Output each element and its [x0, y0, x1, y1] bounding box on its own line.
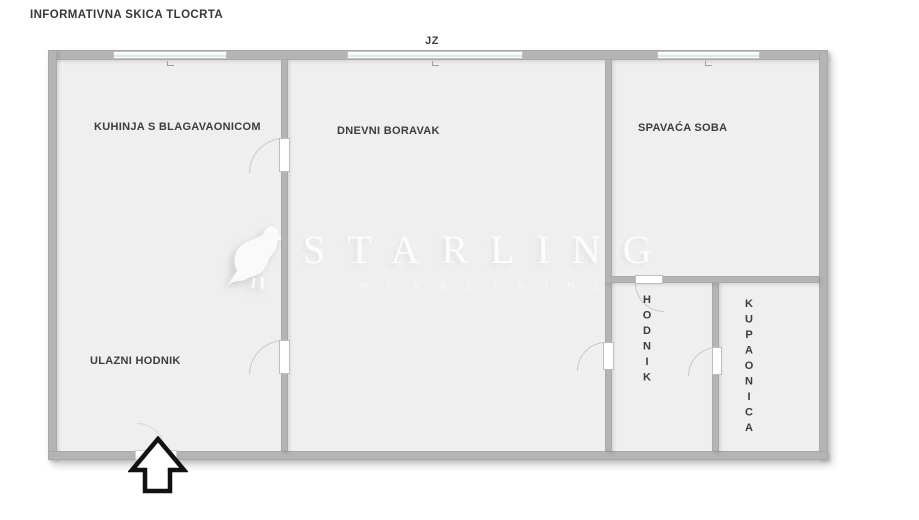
starling-bird-icon — [226, 225, 286, 289]
watermark-subtitle: NEKRETNINE — [360, 280, 620, 292]
page-title: INFORMATIVNA SKICA TLOCRTA — [30, 9, 223, 21]
room-label-entry-hall: ULAZNI HODNIK — [90, 355, 181, 367]
hallway-door-leaf — [635, 275, 663, 284]
kitchen-window-center-tick — [167, 61, 174, 66]
living-room-window — [347, 51, 523, 59]
living-room-door-arc — [577, 342, 606, 371]
wall-right — [819, 50, 828, 460]
bathroom-door-leaf — [712, 347, 722, 375]
room-label-living-room: DNEVNI BORAVAK — [337, 125, 440, 137]
kitchen-door-leaf — [279, 138, 290, 172]
living-room-door-leaf — [603, 342, 614, 370]
room-label-bedroom: SPAVAĆA SOBA — [638, 122, 727, 134]
bedroom-window — [657, 51, 760, 59]
bedroom-window-center-tick — [705, 61, 712, 66]
room-label-bathroom: KUPAONICA — [743, 298, 754, 438]
watermark-brand: STARLING — [303, 226, 674, 273]
entry-hall-door-leaf — [279, 340, 290, 374]
wall-kitchen-living — [281, 59, 288, 451]
wall-left — [48, 50, 57, 460]
kitchen-window — [113, 51, 227, 59]
room-label-kitchen: KUHINJA S BLAGAVAONICOM — [94, 121, 261, 133]
orientation-label: JZ — [412, 35, 452, 47]
living-window-center-tick — [432, 61, 439, 66]
entrance-arrow-icon — [128, 436, 188, 494]
floor-plan: KUHINJA S BLAGAVAONICOM DNEVNI BORAVAK S… — [48, 50, 828, 460]
room-label-hallway: HODNIK — [641, 294, 652, 387]
